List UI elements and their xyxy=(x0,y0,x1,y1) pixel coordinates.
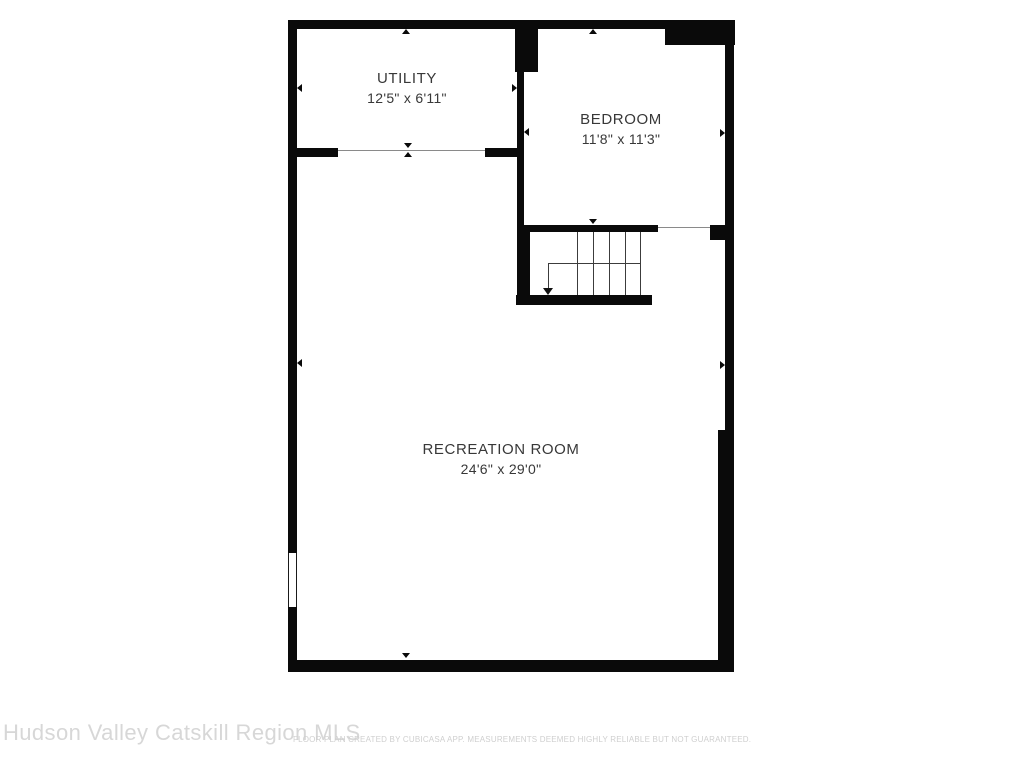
floor-plan-canvas: UTILITY 12'5" x 6'11" BEDROOM 11'8" x 11… xyxy=(0,0,1024,768)
room-name: RECREATION ROOM xyxy=(401,441,601,458)
exterior-wall-right-upper xyxy=(725,45,734,225)
room-dimensions: 12'5" x 6'11" xyxy=(307,90,507,107)
wall-marker-recreation-left-icon xyxy=(297,359,302,367)
opening-line-bedroom-doorway xyxy=(658,227,710,228)
wall-marker-bedroom-bottom-icon xyxy=(589,219,597,224)
stair-down-arrow-icon xyxy=(543,288,553,295)
exterior-wall-bottom xyxy=(288,660,734,672)
window-left-wall xyxy=(288,553,297,607)
interior-wall-utility-bottom-right xyxy=(485,148,518,157)
opening-line-utility-doorway xyxy=(338,150,485,151)
room-name: UTILITY xyxy=(307,70,507,87)
wall-marker-recreation-right-icon xyxy=(720,361,725,369)
exterior-wall-right-stub xyxy=(710,225,734,240)
exterior-wall-top-right-block xyxy=(665,20,735,45)
room-name: BEDROOM xyxy=(521,111,721,128)
room-label-utility: UTILITY 12'5" x 6'11" xyxy=(307,70,507,107)
wall-marker-utility-top-icon xyxy=(402,29,410,34)
stairwell-wall-left xyxy=(517,225,530,305)
stair-walkline xyxy=(548,263,641,264)
stairwell-wall-top xyxy=(517,225,658,232)
stairwell-wall-bottom xyxy=(516,295,652,305)
room-dimensions: 24'6" x 29'0" xyxy=(401,461,601,478)
wall-marker-bedroom-top-icon xyxy=(589,29,597,34)
exterior-wall-right-mid xyxy=(725,240,734,430)
opening-marker-utility-door-bottom-icon xyxy=(404,152,412,157)
stair-walkline-drop xyxy=(548,263,549,290)
wall-marker-utility-left-icon xyxy=(297,84,302,92)
interior-wall-utility-bedroom-divider xyxy=(517,72,524,225)
room-label-recreation-room: RECREATION ROOM 24'6" x 29'0" xyxy=(401,441,601,478)
wall-marker-recreation-bottom-icon xyxy=(402,653,410,658)
opening-marker-utility-door-top-icon xyxy=(404,143,412,148)
exterior-wall-left-upper xyxy=(288,20,297,553)
disclaimer-text: FLOOR PLAN CREATED BY CUBICASA APP. MEAS… xyxy=(293,735,751,744)
wall-marker-utility-right-icon xyxy=(512,84,517,92)
exterior-wall-top xyxy=(288,20,665,29)
exterior-wall-right-lower xyxy=(718,430,734,660)
room-dimensions: 11'8" x 11'3" xyxy=(521,131,721,148)
interior-wall-chimney-block xyxy=(515,20,538,72)
interior-wall-utility-bottom-left xyxy=(288,148,338,157)
room-label-bedroom: BEDROOM 11'8" x 11'3" xyxy=(521,111,721,148)
